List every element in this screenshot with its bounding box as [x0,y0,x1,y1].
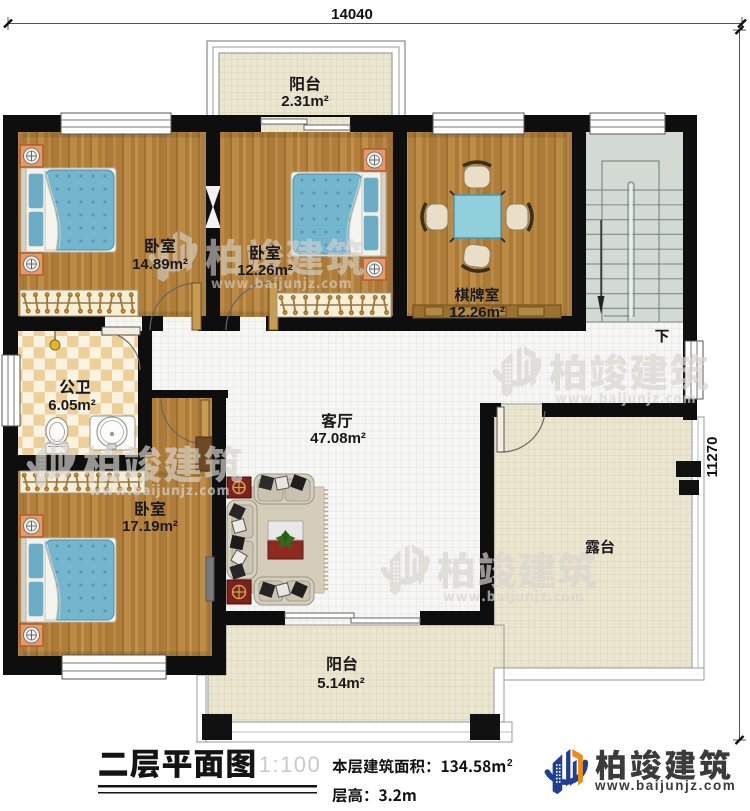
svg-text:47.08m²: 47.08m² [310,430,366,447]
svg-text:14040: 14040 [331,6,373,23]
svg-text:17.19m²: 17.19m² [122,518,178,535]
svg-text:1:100: 1:100 [259,752,322,777]
svg-text:12.26m²: 12.26m² [449,304,505,321]
svg-text:6.05m²: 6.05m² [48,397,96,414]
svg-text:11270: 11270 [704,437,721,478]
svg-text:2: 2 [507,758,513,769]
svg-text:12.26m²: 12.26m² [237,262,293,279]
svg-text:2.31m²: 2.31m² [281,93,329,110]
svg-text:14.89m²: 14.89m² [132,256,188,273]
svg-text:5.14m²: 5.14m² [317,675,365,692]
svg-text:www.baijunjz.com: www.baijunjz.com [594,778,736,793]
